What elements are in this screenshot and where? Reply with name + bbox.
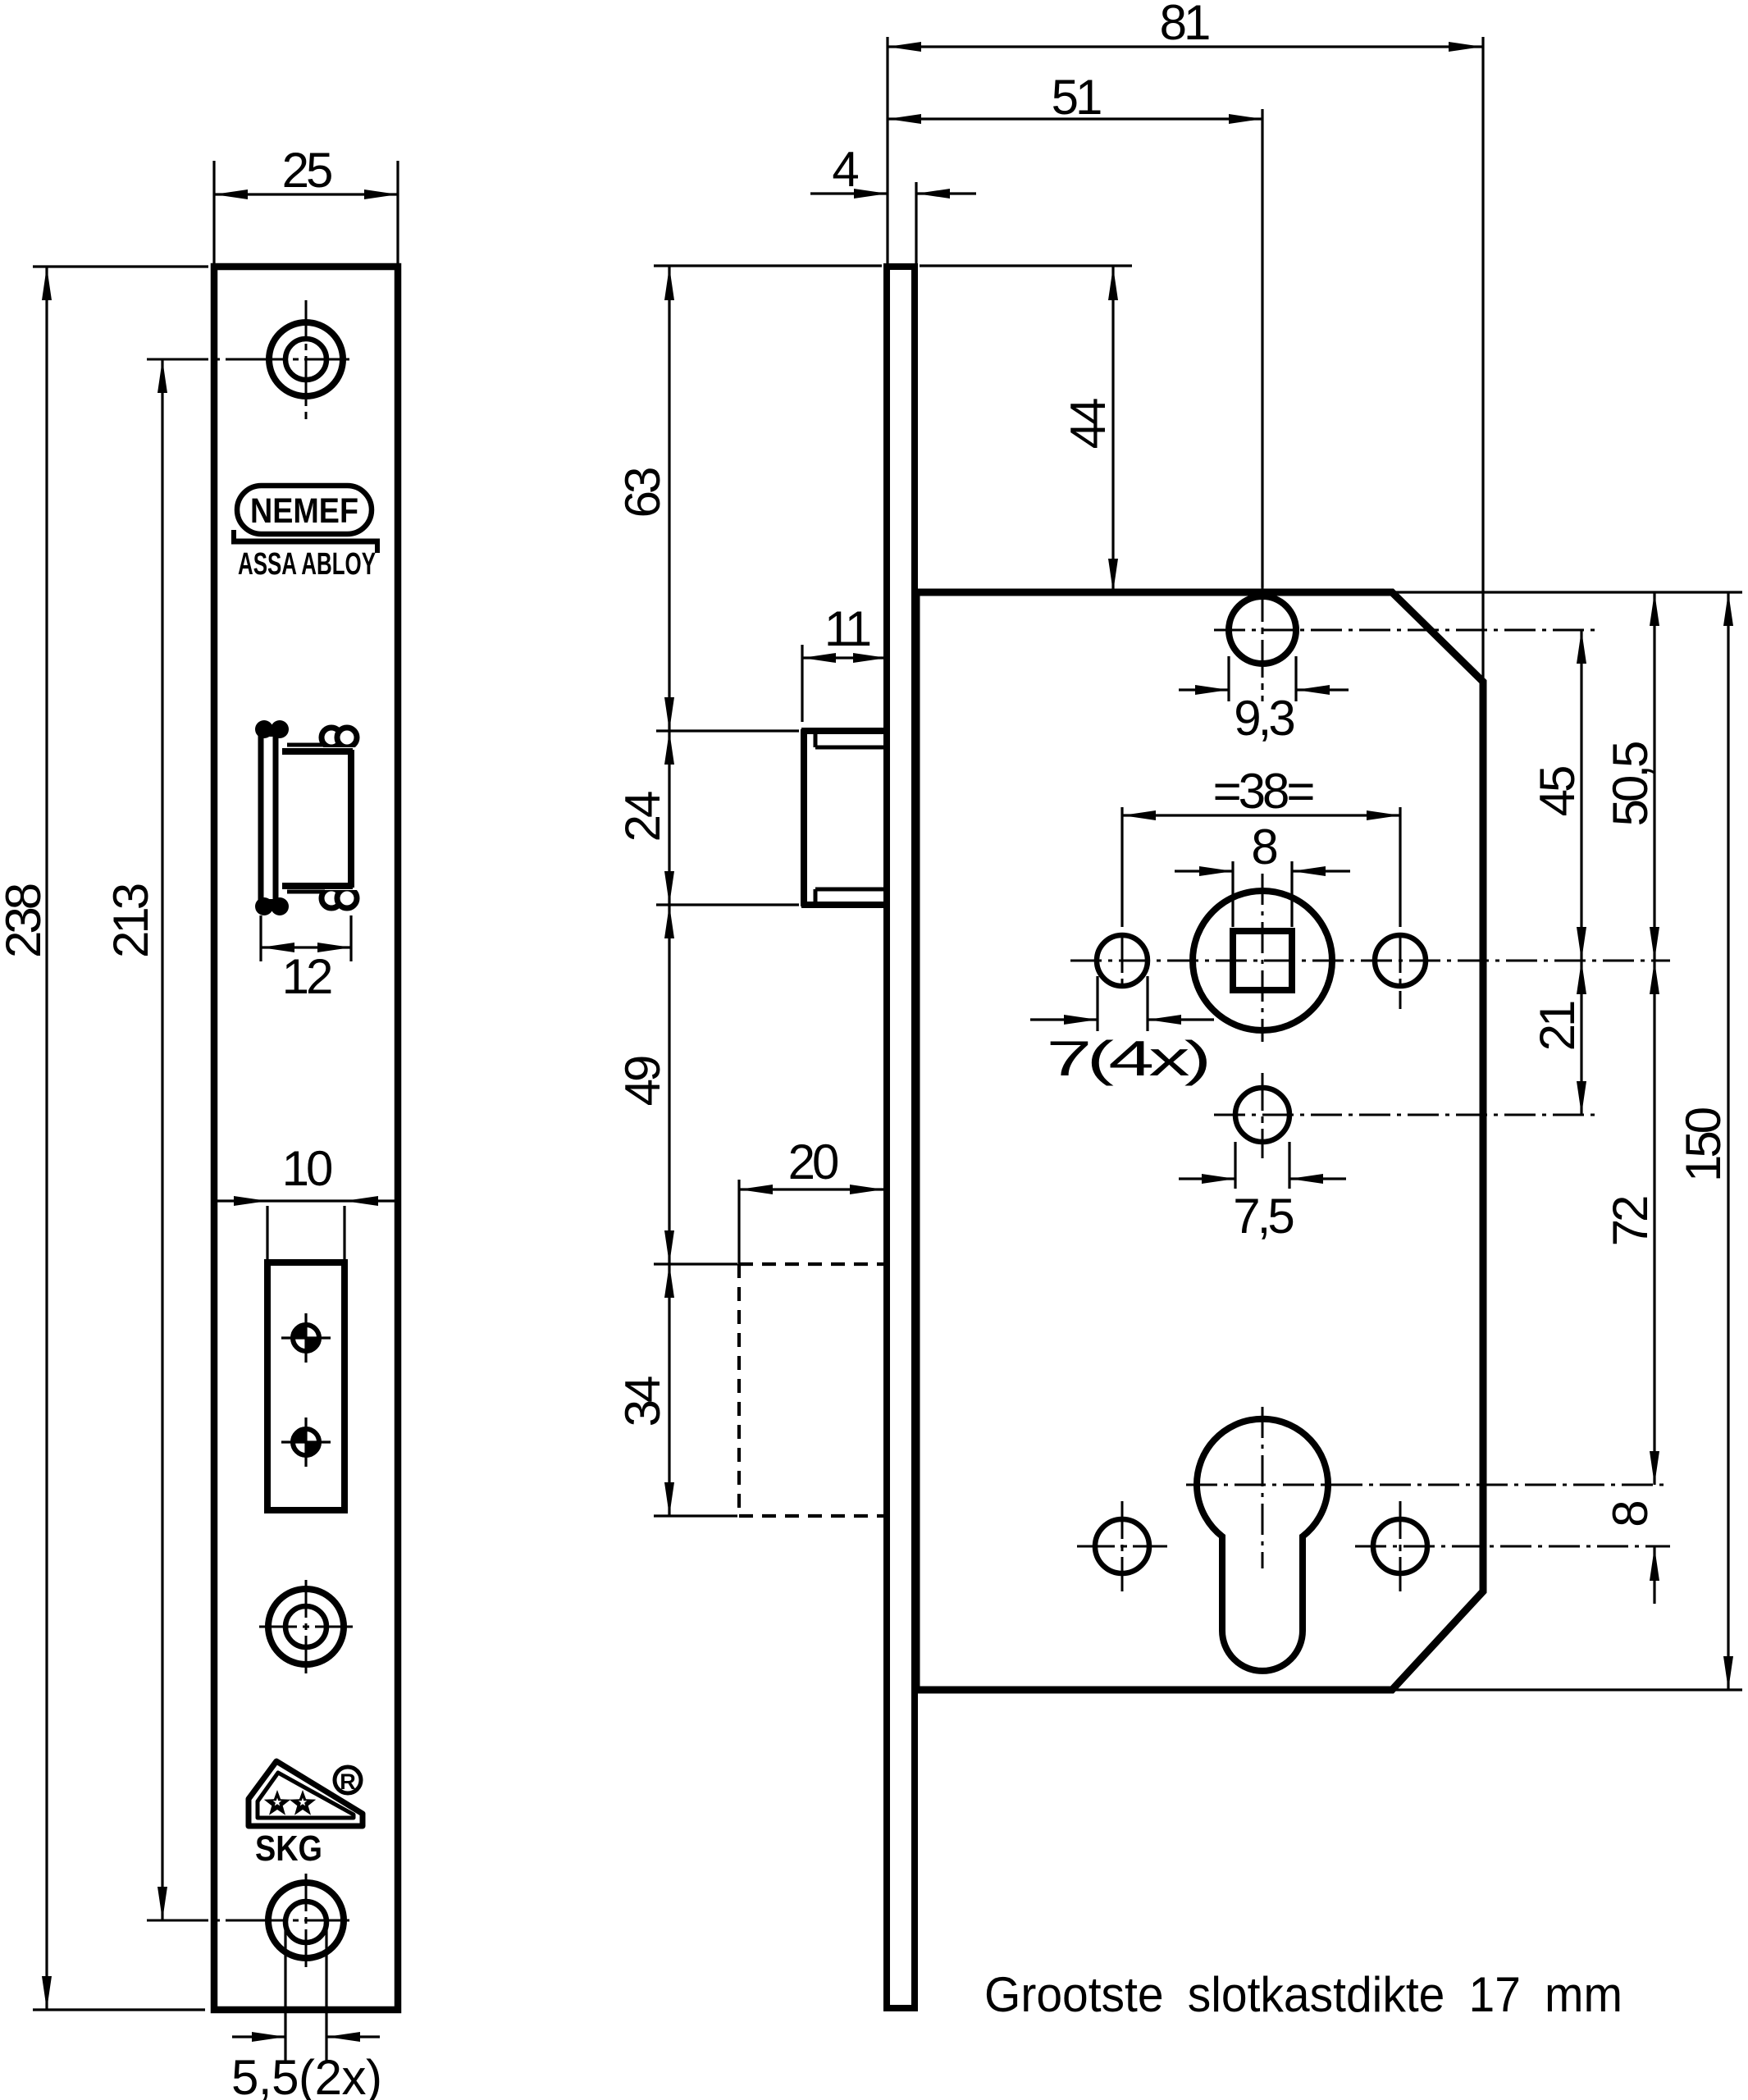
svg-text:50,5: 50,5 (1603, 742, 1658, 826)
svg-text:8: 8 (1251, 819, 1276, 874)
svg-text:45: 45 (1530, 767, 1585, 816)
svg-text:SKG: SKG (255, 1828, 322, 1869)
svg-text:24: 24 (615, 792, 670, 842)
svg-text:72: 72 (1603, 1197, 1658, 1246)
svg-text:81: 81 (1160, 0, 1209, 50)
svg-text:R: R (340, 1769, 356, 1794)
svg-text:11: 11 (824, 601, 870, 656)
svg-text:10: 10 (282, 1141, 332, 1196)
svg-text:25: 25 (282, 143, 331, 198)
svg-text:8: 8 (1603, 1502, 1658, 1527)
svg-text:4: 4 (832, 142, 858, 197)
svg-text:=38=: =38= (1213, 764, 1314, 819)
svg-text:7(4x): 7(4x) (1047, 1031, 1208, 1086)
svg-text:51: 51 (1052, 70, 1101, 125)
svg-text:44: 44 (1061, 399, 1116, 449)
svg-text:238: 238 (0, 884, 51, 958)
svg-text:9,3: 9,3 (1234, 691, 1294, 746)
svg-text:5,5(2x): 5,5(2x) (231, 2050, 380, 2100)
svg-text:ASSA ABLOY: ASSA ABLOY (238, 547, 376, 582)
svg-text:7,5: 7,5 (1233, 1189, 1293, 1244)
svg-text:12: 12 (282, 949, 331, 1004)
svg-text:NEMEF: NEMEF (250, 491, 358, 531)
svg-text:213: 213 (103, 884, 158, 958)
svg-text:21: 21 (1530, 1002, 1585, 1051)
svg-text:150: 150 (1676, 1107, 1731, 1182)
svg-text:63: 63 (615, 468, 670, 518)
svg-text:Grootste slotkastdikte 17 mm: Grootste slotkastdikte 17 mm (984, 1967, 1622, 2022)
svg-text:34: 34 (615, 1376, 670, 1427)
svg-text:20: 20 (788, 1134, 838, 1189)
svg-text:49: 49 (615, 1057, 670, 1106)
